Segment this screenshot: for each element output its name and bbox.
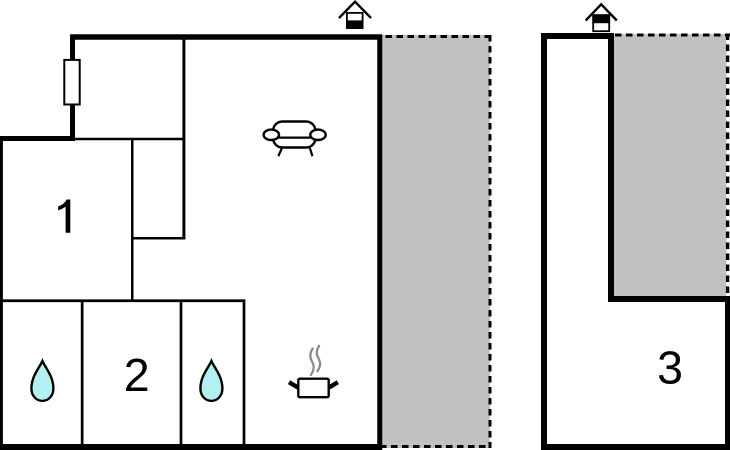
- svg-text:2: 2: [124, 349, 150, 401]
- svg-text:3: 3: [657, 342, 683, 394]
